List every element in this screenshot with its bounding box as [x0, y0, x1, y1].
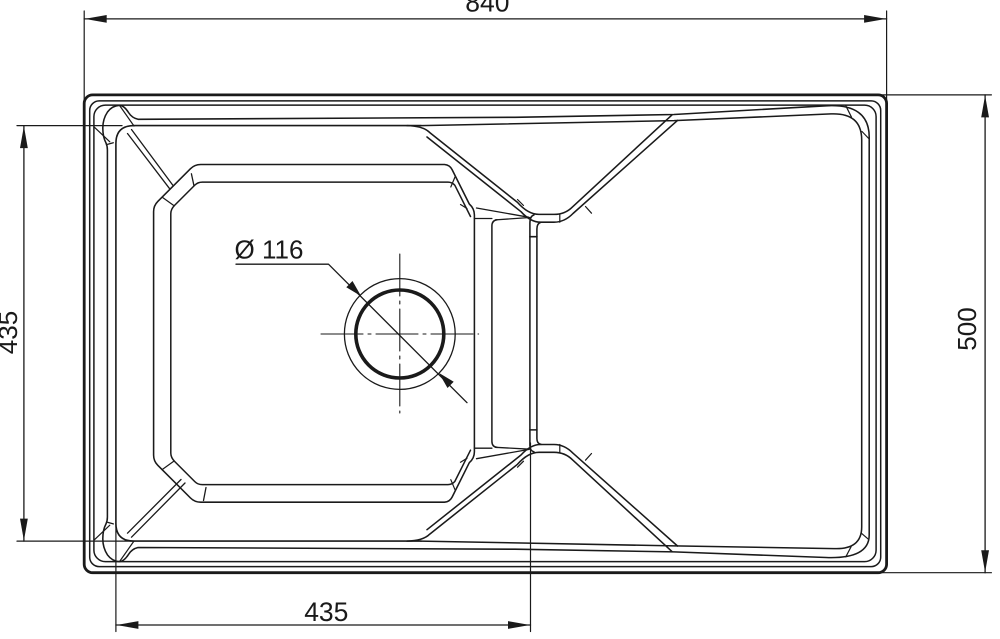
svg-text:500: 500: [952, 307, 982, 350]
svg-text:435: 435: [304, 597, 348, 627]
svg-text:840: 840: [465, 0, 509, 18]
svg-text:435: 435: [0, 311, 23, 354]
svg-text:Ø 116: Ø 116: [235, 235, 304, 265]
